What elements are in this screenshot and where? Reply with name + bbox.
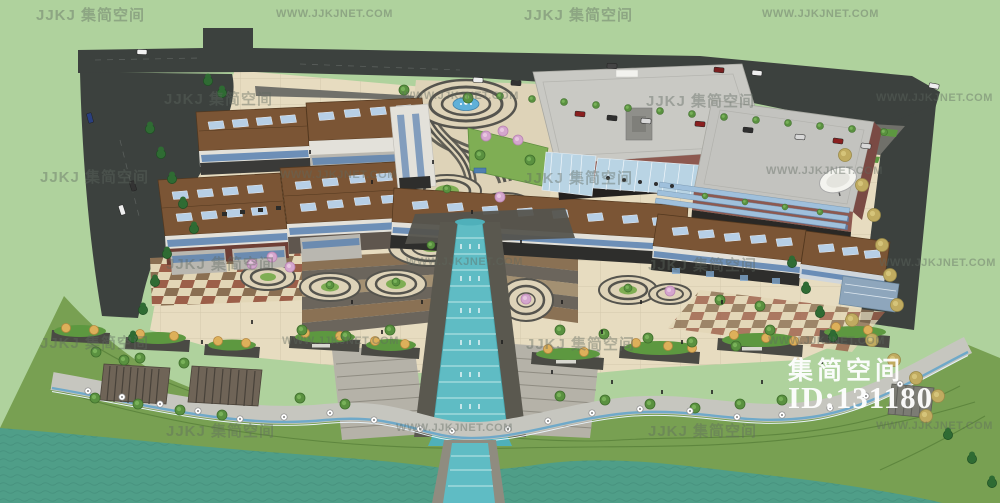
model-id-caption: ID:131180 bbox=[788, 380, 933, 416]
fountain bbox=[416, 80, 516, 128]
render-stage: JJKJ 集简空间WWW.JJKJNET.COMJJKJ 集简空间WWW.JJK… bbox=[0, 0, 1000, 503]
site-plan-render bbox=[0, 0, 1000, 503]
shop-slab-east-facing bbox=[390, 104, 436, 190]
shop-block-northwest-1 bbox=[196, 107, 311, 175]
outfall-channel bbox=[432, 440, 505, 503]
